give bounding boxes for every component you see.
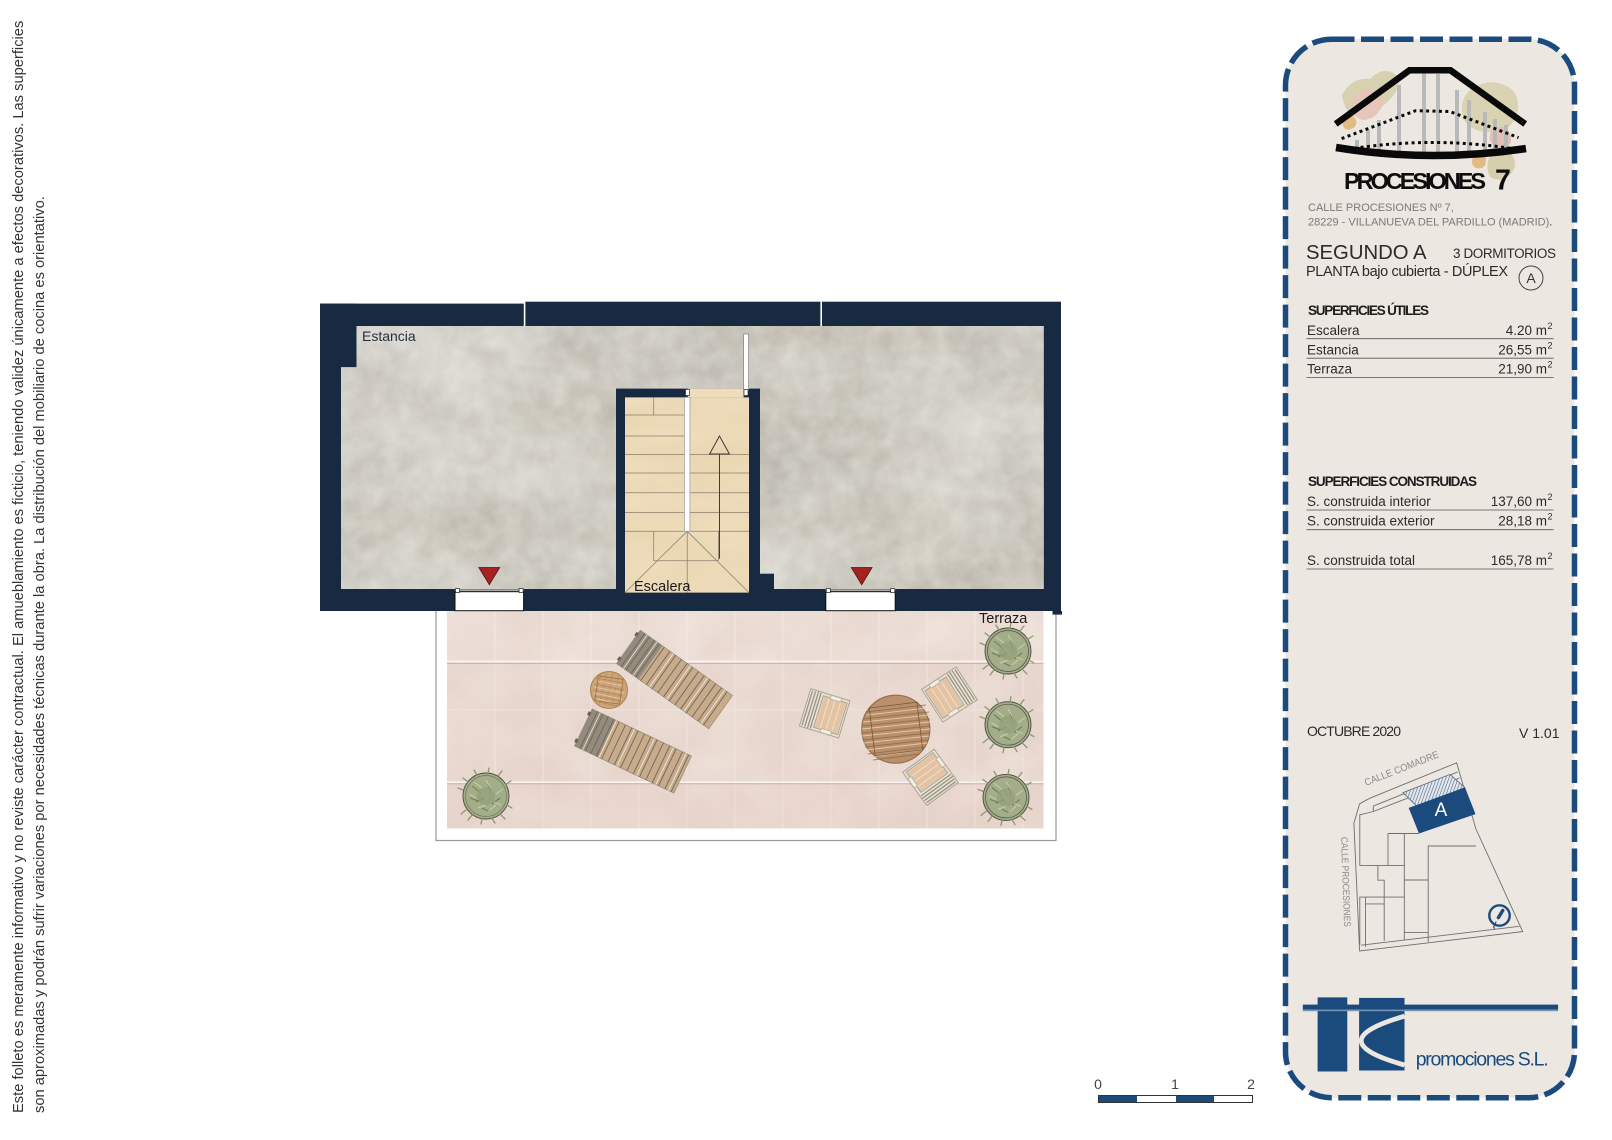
- svg-text:A: A: [1435, 800, 1448, 821]
- svg-text:Terraza: Terraza: [1307, 362, 1353, 377]
- svg-text:PLANTA bajo cubierta - DÚPLEX: PLANTA bajo cubierta - DÚPLEX: [1306, 263, 1508, 280]
- svg-text:26,55 m: 26,55 m: [1498, 343, 1547, 358]
- svg-text:28229 - VILLANUEVA DEL PARDIL: 28229 - VILLANUEVA DEL PARDILLO (MADRID)…: [1308, 217, 1552, 229]
- svg-text:2: 2: [1548, 321, 1553, 331]
- svg-text:2: 2: [1548, 512, 1553, 522]
- svg-text:S. construida exterior: S. construida exterior: [1307, 514, 1435, 529]
- svg-text:Estancia: Estancia: [362, 328, 416, 344]
- svg-text:Escalera: Escalera: [1307, 323, 1360, 338]
- svg-text:S. construida interior: S. construida interior: [1307, 494, 1431, 509]
- svg-text:V 1.01: V 1.01: [1519, 725, 1560, 741]
- svg-text:Escalera: Escalera: [634, 579, 691, 595]
- svg-text:165,78 m: 165,78 m: [1491, 553, 1547, 568]
- svg-text:CALLE PROCESIONES Nº 7,: CALLE PROCESIONES Nº 7,: [1308, 202, 1454, 214]
- svg-text:137,60 m: 137,60 m: [1491, 494, 1547, 509]
- svg-text:S. construida total: S. construida total: [1307, 553, 1415, 568]
- svg-text:2: 2: [1548, 341, 1553, 351]
- svg-text:4.20 m: 4.20 m: [1506, 323, 1547, 338]
- svg-text:SUPERFICIES CONSTRUIDAS: SUPERFICIES CONSTRUIDAS: [1308, 474, 1477, 489]
- svg-text:2: 2: [1548, 360, 1553, 370]
- svg-text:28,18 m: 28,18 m: [1498, 514, 1547, 529]
- svg-text:7: 7: [1495, 165, 1511, 197]
- svg-text:SUPERFICIES ÚTILES: SUPERFICIES ÚTILES: [1308, 303, 1429, 318]
- svg-text:PROCESIONES: PROCESIONES: [1344, 168, 1486, 194]
- svg-text:3 DORMITORIOS: 3 DORMITORIOS: [1453, 246, 1556, 261]
- svg-text:promociones S.L.: promociones S.L.: [1416, 1049, 1549, 1071]
- svg-text:A: A: [1526, 270, 1536, 286]
- svg-text:21,90 m: 21,90 m: [1498, 362, 1547, 377]
- svg-text:2: 2: [1548, 492, 1553, 502]
- svg-text:OCTUBRE 2020: OCTUBRE 2020: [1307, 723, 1401, 739]
- svg-text:SEGUNDO A: SEGUNDO A: [1306, 242, 1427, 264]
- svg-text:Terraza: Terraza: [979, 611, 1028, 627]
- svg-text:2: 2: [1548, 551, 1553, 561]
- svg-text:Estancia: Estancia: [1307, 343, 1359, 358]
